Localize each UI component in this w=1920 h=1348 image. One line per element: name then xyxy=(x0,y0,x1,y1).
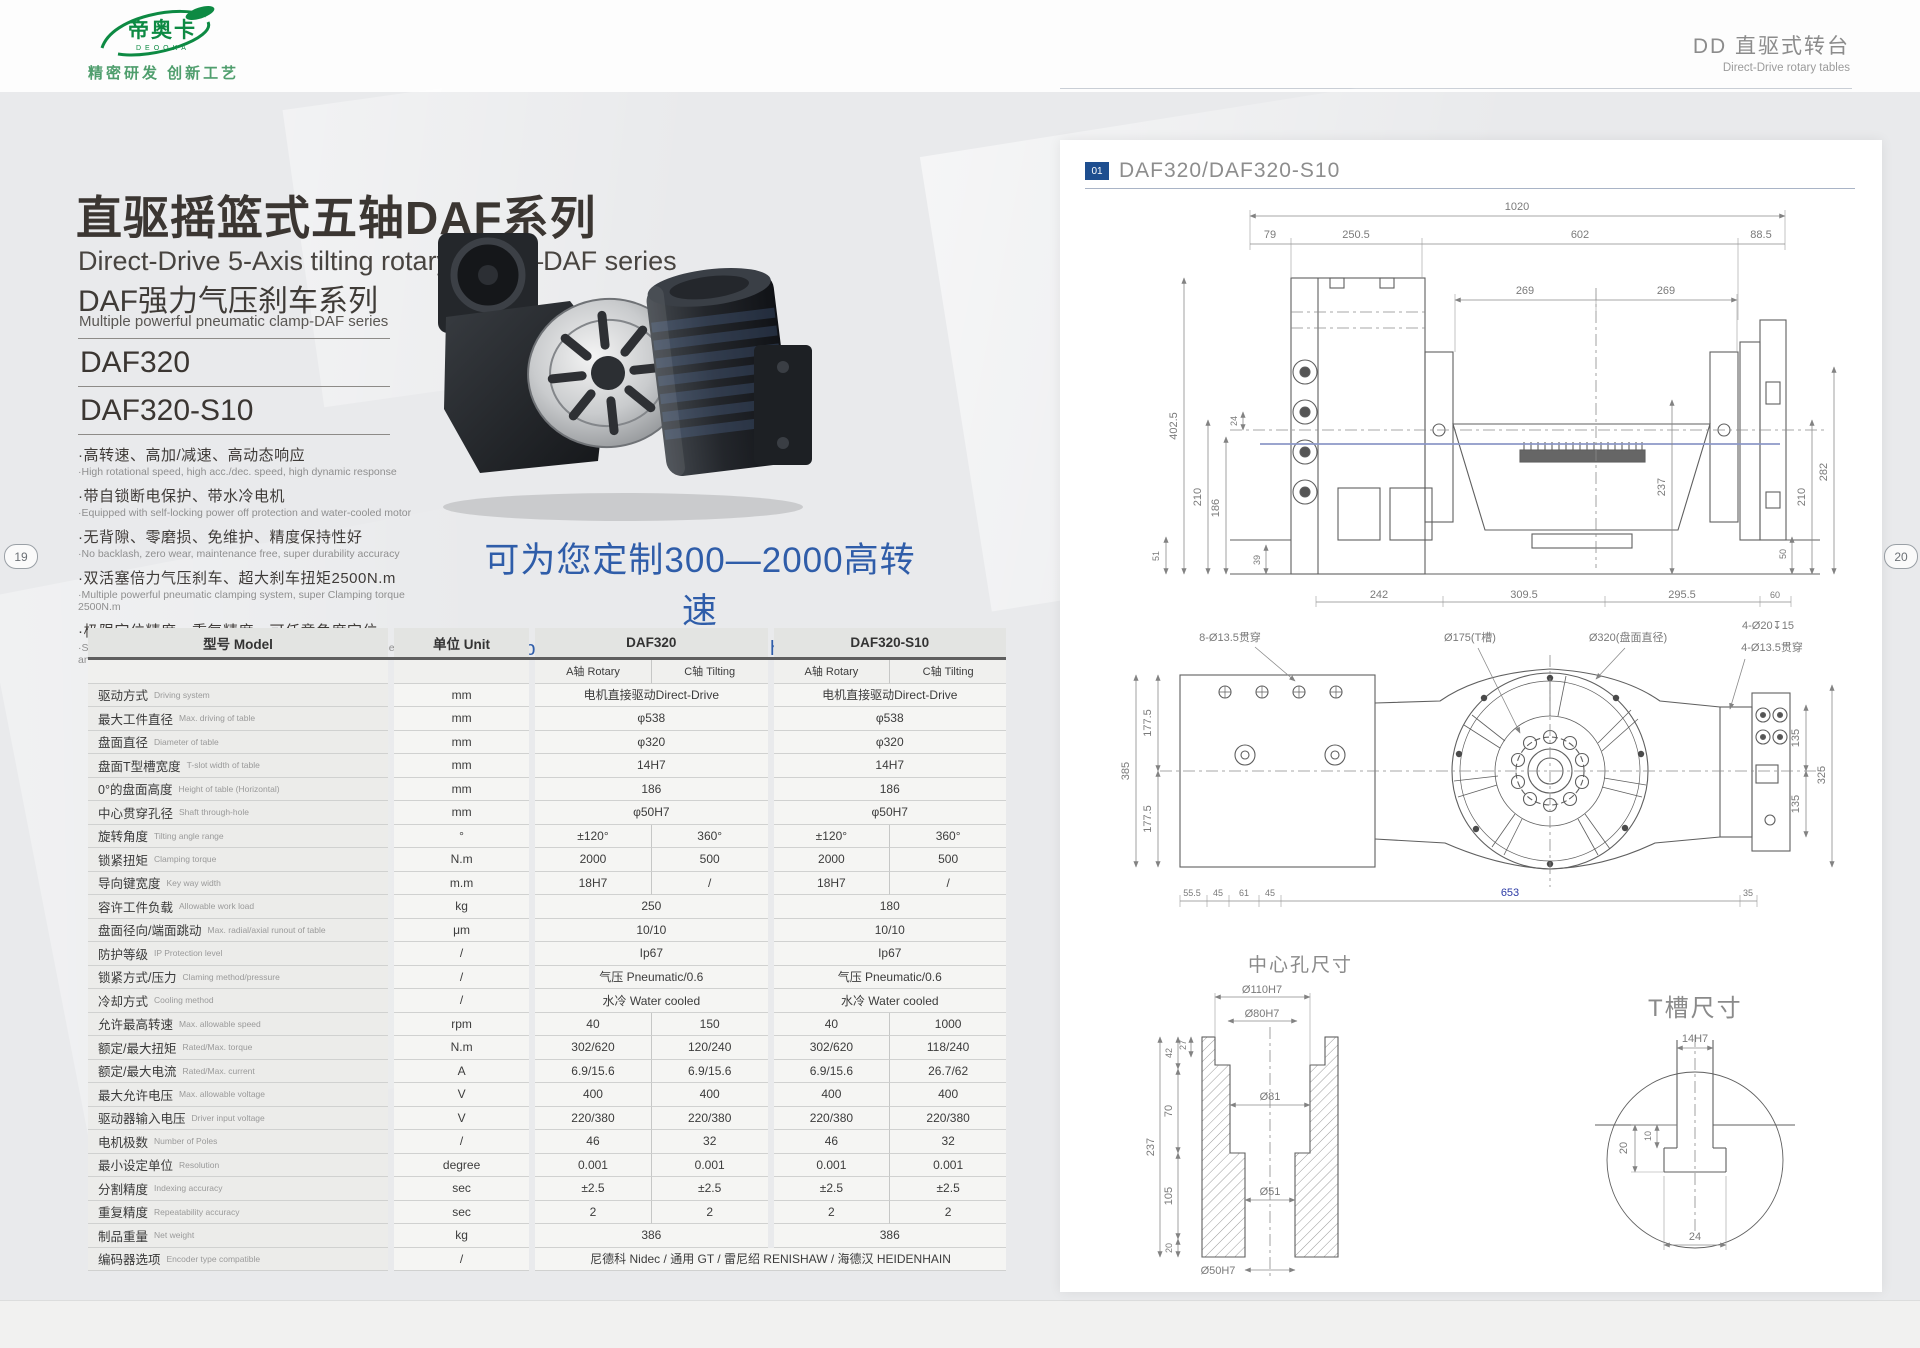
row-unit: / xyxy=(394,942,529,966)
row-value: φ538 xyxy=(774,707,1006,731)
spec-row: 防护等级IP Protection level/Ip67Ip67 xyxy=(88,942,1006,966)
row-value: 1000 xyxy=(889,1013,1006,1037)
row-value: 电机直接驱动Direct-Drive xyxy=(774,684,1006,708)
row-label: 分割精度Indexing accuracy xyxy=(88,1177,388,1201)
row-value: 40 xyxy=(774,1013,890,1037)
row-value: 2 xyxy=(535,1201,651,1225)
dim-label: 24 xyxy=(1689,1231,1701,1243)
row-value: 18H7 xyxy=(774,872,890,896)
axis-c-label: C轴 Tilting xyxy=(889,660,1006,684)
row-value: 220/380 xyxy=(889,1107,1006,1131)
spec-row: 最大工件直径Max. driving of tablemmφ538φ538 xyxy=(88,707,1006,731)
callout-label: Ø175(T槽) xyxy=(1444,631,1496,644)
dim-label: 269 xyxy=(1657,285,1675,297)
dim-label: 14H7 xyxy=(1682,1033,1708,1045)
header-divider xyxy=(1060,88,1852,89)
row-value: 6.9/15.6 xyxy=(774,1060,890,1084)
row-unit: ° xyxy=(394,825,529,849)
spec-row: 驱动方式Driving systemmm电机直接驱动Direct-Drive电机… xyxy=(88,684,1006,708)
spec-table-rows: 驱动方式Driving systemmm电机直接驱动Direct-Drive电机… xyxy=(88,684,1006,1272)
row-unit: / xyxy=(394,989,529,1013)
tslot-drawing: 14H7 20 10 24 xyxy=(1545,1020,1835,1280)
row-value: 302/620 xyxy=(774,1036,890,1060)
row-label: 导向键宽度Key way width xyxy=(88,872,388,896)
row-value: 18H7 xyxy=(535,872,651,896)
row-value: 10/10 xyxy=(774,919,1006,943)
callout-label: 4-Ø13.5贯穿 xyxy=(1741,640,1803,654)
dim-label: 242 xyxy=(1370,589,1388,601)
spec-row: 最大允许电压Max. allowable voltageV40040040040… xyxy=(88,1083,1006,1107)
dim-label: 88.5 xyxy=(1750,229,1771,241)
row-value: 386 xyxy=(535,1224,767,1248)
spec-row: 锁紧扭矩Clamping torqueN.m20005002000500 xyxy=(88,848,1006,872)
feature-cn: ·无背隙、零磨损、免维护、精度保持性好 xyxy=(78,526,438,547)
dim-label: 50 xyxy=(1778,549,1788,559)
section-divider xyxy=(1085,188,1855,189)
dim-label: 186 xyxy=(1210,499,1222,517)
drawing-section-label: 01 DAF320/DAF320-S10 xyxy=(1085,159,1340,183)
dim-label: 210 xyxy=(1796,488,1808,506)
tslot-heading: T槽尺寸 xyxy=(1648,988,1743,1023)
dim-label: 45 xyxy=(1213,888,1223,898)
row-label: 最大允许电压Max. allowable voltage xyxy=(88,1083,388,1107)
row-label: 盘面径向/端面跳动Max. radial/axial runout of tab… xyxy=(88,919,388,943)
row-value: / xyxy=(651,872,768,896)
row-value: 500 xyxy=(889,848,1006,872)
divider xyxy=(78,434,390,435)
row-unit: kg xyxy=(394,1224,529,1248)
dim-label: 653 xyxy=(1501,887,1519,899)
row-label: 额定/最大电流Rated/Max. current xyxy=(88,1060,388,1084)
row-unit: rpm xyxy=(394,1013,529,1037)
row-label: 锁紧方式/压力Claming method/pressure xyxy=(88,966,388,990)
spec-row: 额定/最大扭矩Rated/Max. torqueN.m302/620120/24… xyxy=(88,1036,1006,1060)
row-unit: mm xyxy=(394,801,529,825)
spec-axis-spacer xyxy=(88,660,388,684)
dim-label: Ø110H7 xyxy=(1242,985,1282,996)
row-value: 120/240 xyxy=(651,1036,768,1060)
dim-label: 325 xyxy=(1816,766,1828,784)
row-value: 电机直接驱动Direct-Drive xyxy=(535,684,767,708)
dim-label: 61 xyxy=(1239,888,1249,898)
dim-label: 385 xyxy=(1120,762,1132,780)
dim-label: 27 xyxy=(1178,1040,1188,1050)
row-value: 2 xyxy=(774,1201,890,1225)
callout-label: Ø320(盘面直径) xyxy=(1589,630,1667,644)
row-value: ±2.5 xyxy=(651,1177,768,1201)
row-unit: V xyxy=(394,1083,529,1107)
dim-label: Ø50H7 xyxy=(1201,1265,1236,1277)
dim-label: 402.5 xyxy=(1168,412,1180,440)
catalog-page: 帝奥卡 DEOOKA 精密研发 创新工艺 DD 直驱式转台 Direct-Dri… xyxy=(0,0,1920,1348)
spec-axis-spacer xyxy=(394,660,529,684)
row-label: 驱动器输入电压Driver input voltage xyxy=(88,1107,388,1131)
row-value: 386 xyxy=(774,1224,1006,1248)
row-value: 46 xyxy=(535,1130,651,1154)
header-right: DD 直驱式转台 Direct-Drive rotary tables xyxy=(1693,30,1850,74)
dim-label: 177.5 xyxy=(1142,709,1154,737)
feature-en: ·No backlash, zero wear, maintenance fre… xyxy=(78,548,438,560)
row-unit: V xyxy=(394,1107,529,1131)
row-value: ±2.5 xyxy=(535,1177,651,1201)
row-value: 186 xyxy=(774,778,1006,802)
spec-row: 编码器选项Encoder type compatible/尼德科 Nidec /… xyxy=(88,1248,1006,1272)
callout-label: 4-Ø20↧15 xyxy=(1742,620,1794,632)
row-value: 32 xyxy=(889,1130,1006,1154)
row-unit: / xyxy=(394,1248,529,1272)
row-label: 制品重量Net weight xyxy=(88,1224,388,1248)
dim-label: 1020 xyxy=(1505,201,1529,213)
dim-label: 135 xyxy=(1790,729,1802,747)
center-hole-drawing: Ø110H7 Ø80H7 237 42 27 70 105 20 Ø81 Ø51… xyxy=(1140,985,1420,1285)
feature-cn: ·高转速、高加/减速、高动态响应 xyxy=(78,444,438,465)
spec-row: 额定/最大电流Rated/Max. currentA6.9/15.66.9/15… xyxy=(88,1060,1006,1084)
dim-label: 282 xyxy=(1818,463,1830,481)
dim-label: 70 xyxy=(1163,1105,1175,1117)
row-value: 400 xyxy=(651,1083,768,1107)
feature-en: ·High rotational speed, high acc./dec. s… xyxy=(78,466,438,478)
row-unit: A xyxy=(394,1060,529,1084)
dim-label: 237 xyxy=(1145,1138,1157,1156)
model-daf320-s10: DAF320-S10 xyxy=(80,394,253,428)
dim-label: 250.5 xyxy=(1342,229,1370,241)
dim-label: Ø51 xyxy=(1260,1186,1281,1198)
row-value: Ip67 xyxy=(535,942,767,966)
dim-label: 309.5 xyxy=(1510,589,1538,601)
row-unit: mm xyxy=(394,731,529,755)
dim-label: Ø81 xyxy=(1260,1091,1281,1103)
row-value: φ50H7 xyxy=(774,801,1006,825)
row-label: 编码器选项Encoder type compatible xyxy=(88,1248,388,1272)
header-right-title: DD 直驱式转台 xyxy=(1693,30,1850,60)
row-value: 6.9/15.6 xyxy=(651,1060,768,1084)
feature-en: ·Equipped with self-locking power off pr… xyxy=(78,507,438,519)
footer-band xyxy=(0,1300,1920,1348)
spec-header-daf320: DAF320 xyxy=(535,628,767,657)
row-value: φ320 xyxy=(535,731,767,755)
row-value: 220/380 xyxy=(535,1107,651,1131)
row-value: 气压 Pneumatic/0.6 xyxy=(774,966,1006,990)
dim-label: 602 xyxy=(1571,229,1589,241)
row-value: 2000 xyxy=(535,848,651,872)
row-unit: mm xyxy=(394,754,529,778)
axis-a-label: A轴 Rotary xyxy=(535,660,651,684)
spec-row: 旋转角度Tilting angle range°±120°360°±120°36… xyxy=(88,825,1006,849)
row-value: 46 xyxy=(774,1130,890,1154)
dim-label: 79 xyxy=(1264,229,1276,241)
page-number-left: 19 xyxy=(4,544,38,569)
row-unit: kg xyxy=(394,895,529,919)
spec-row: 重复精度Repeatability accuracysec2222 xyxy=(88,1201,1006,1225)
row-value: 水冷 Water cooled xyxy=(535,989,767,1013)
spec-header-model: 型号 Model xyxy=(88,628,388,657)
spec-row: 盘面T型槽宽度T-slot width of tablemm14H714H7 xyxy=(88,754,1006,778)
row-label: 电机极数Number of Poles xyxy=(88,1130,388,1154)
row-value: φ50H7 xyxy=(535,801,767,825)
row-label: 中心贯穿孔径Shaft through-hole xyxy=(88,801,388,825)
row-unit: sec xyxy=(394,1177,529,1201)
dim-label: 135 xyxy=(1790,795,1802,813)
spec-row: 制品重量Net weightkg386386 xyxy=(88,1224,1006,1248)
dim-label: 20 xyxy=(1164,1243,1174,1253)
row-value: 400 xyxy=(889,1083,1006,1107)
spec-row: 电机极数Number of Poles/46324632 xyxy=(88,1130,1006,1154)
row-label: 最大工件直径Max. driving of table xyxy=(88,707,388,731)
spec-header-daf320-s10: DAF320-S10 xyxy=(774,628,1006,657)
row-value: 400 xyxy=(774,1083,890,1107)
series-subtitle: Multiple powerful pneumatic clamp-DAF se… xyxy=(79,313,388,330)
row-value: 0.001 xyxy=(889,1154,1006,1178)
page-number-right: 20 xyxy=(1884,544,1918,569)
section-title: DAF320/DAF320-S10 xyxy=(1119,159,1340,183)
spec-row: 最小设定单位Resolutiondegree0.0010.0010.0010.0… xyxy=(88,1154,1006,1178)
spec-row: 允许最高转速Max. allowable speedrpm40150401000 xyxy=(88,1013,1006,1037)
dim-label: 39 xyxy=(1252,555,1262,565)
model-daf320: DAF320 xyxy=(80,346,190,380)
axis-a-label: A轴 Rotary xyxy=(774,660,890,684)
logo-subtext: DEOOKA xyxy=(136,45,190,52)
spec-row: 盘面径向/端面跳动Max. radial/axial runout of tab… xyxy=(88,919,1006,943)
row-label: 重复精度Repeatability accuracy xyxy=(88,1201,388,1225)
row-value: 水冷 Water cooled xyxy=(774,989,1006,1013)
dim-label: 51 xyxy=(1151,551,1161,561)
feature-cn: ·双活塞倍力气压刹车、超大刹车扭矩2500N.m xyxy=(78,567,438,588)
spec-row: 盘面直径Diameter of tablemmφ320φ320 xyxy=(88,731,1006,755)
row-value: 0.001 xyxy=(651,1154,768,1178)
row-value: φ538 xyxy=(535,707,767,731)
custom-speed-cn: 可为您定制300—2000高转速 xyxy=(478,532,922,634)
dim-label: 42 xyxy=(1164,1048,1174,1058)
dim-label: 105 xyxy=(1163,1187,1175,1205)
feature-item: ·无背隙、零磨损、免维护、精度保持性好·No backlash, zero we… xyxy=(78,526,438,560)
dim-label: 295.5 xyxy=(1668,589,1696,601)
header xyxy=(0,0,1920,92)
spec-header-unit: 单位 Unit xyxy=(394,628,529,657)
row-value: 0.001 xyxy=(535,1154,651,1178)
row-unit: / xyxy=(394,1130,529,1154)
row-value: 186 xyxy=(535,778,767,802)
dim-label: 237 xyxy=(1656,478,1668,496)
row-value: 10/10 xyxy=(535,919,767,943)
feature-en: ·Multiple powerful pneumatic clamping sy… xyxy=(78,589,438,613)
row-label: 防护等级IP Protection level xyxy=(88,942,388,966)
row-unit: / xyxy=(394,966,529,990)
row-value: ±120° xyxy=(535,825,651,849)
row-value: 180 xyxy=(774,895,1006,919)
front-view-drawing: 1020 79 250.5 602 88.5 269 269 402.5 210… xyxy=(1080,192,1870,607)
dim-label: 269 xyxy=(1516,285,1534,297)
row-value: 26.7/62 xyxy=(889,1060,1006,1084)
row-unit: N.m xyxy=(394,1036,529,1060)
row-value: 250 xyxy=(535,895,767,919)
feature-item: ·双活塞倍力气压刹车、超大刹车扭矩2500N.m·Multiple powerf… xyxy=(78,567,438,613)
row-label: 盘面直径Diameter of table xyxy=(88,731,388,755)
feature-item: ·带自锁断电保护、带水冷电机·Equipped with self-lockin… xyxy=(78,485,438,519)
dim-label: 10 xyxy=(1643,1131,1653,1141)
divider xyxy=(78,386,390,387)
row-label: 允许最高转速Max. allowable speed xyxy=(88,1013,388,1037)
row-value: 220/380 xyxy=(651,1107,768,1131)
brand-logo-icon: 帝奥卡 DEOOKA xyxy=(84,4,254,62)
row-unit: N.m xyxy=(394,848,529,872)
row-unit: mm xyxy=(394,684,529,708)
row-value: Ip67 xyxy=(774,942,1006,966)
row-value: ±120° xyxy=(774,825,890,849)
spec-axis-row: A轴 Rotary C轴 Tilting A轴 Rotary C轴 Tiltin… xyxy=(88,660,1006,684)
dim-label: 45 xyxy=(1265,888,1275,898)
row-value: 14H7 xyxy=(535,754,767,778)
dim-label: 24 xyxy=(1229,416,1239,426)
row-value: 32 xyxy=(651,1130,768,1154)
plan-view-drawing: 8-Ø13.5贯穿 Ø175(T槽) Ø320(盘面直径) 4-Ø20↧15 4… xyxy=(1080,615,1870,915)
row-unit: sec xyxy=(394,1201,529,1225)
row-label: 0°的盘面高度Height of table (Horizontal) xyxy=(88,778,388,802)
row-value: 尼德科 Nidec / 通用 GT / 雷尼绍 RENISHAW / 海德汉 H… xyxy=(535,1248,1006,1272)
row-label: 容许工件负载Allowable work load xyxy=(88,895,388,919)
spec-row: 容许工件负载Allowable work loadkg250180 xyxy=(88,895,1006,919)
dim-label: 35 xyxy=(1743,888,1753,898)
spec-table: 型号 Model 单位 Unit DAF320 DAF320-S10 A轴 Ro… xyxy=(88,628,1006,1271)
row-label: 最小设定单位Resolution xyxy=(88,1154,388,1178)
row-label: 驱动方式Driving system xyxy=(88,684,388,708)
row-label: 额定/最大扭矩Rated/Max. torque xyxy=(88,1036,388,1060)
row-unit: m.m xyxy=(394,872,529,896)
dim-label: 60 xyxy=(1770,590,1780,600)
feature-item: ·高转速、高加/减速、高动态响应·High rotational speed, … xyxy=(78,444,438,478)
row-value: 2 xyxy=(889,1201,1006,1225)
section-index-badge: 01 xyxy=(1085,162,1109,180)
callout-label: 8-Ø13.5贯穿 xyxy=(1199,630,1261,644)
row-unit: μm xyxy=(394,919,529,943)
dim-label: 210 xyxy=(1192,488,1204,506)
spec-row: 中心贯穿孔径Shaft through-holemmφ50H7φ50H7 xyxy=(88,801,1006,825)
logo-text: 帝奥卡 xyxy=(128,18,197,42)
row-value: 500 xyxy=(651,848,768,872)
spec-row: 导向键宽度Key way widthm.m18H7/18H7/ xyxy=(88,872,1006,896)
row-value: φ320 xyxy=(774,731,1006,755)
row-value: / xyxy=(889,872,1006,896)
brand-tagline: 精密研发 创新工艺 xyxy=(88,62,239,83)
row-value: 14H7 xyxy=(774,754,1006,778)
row-value: 360° xyxy=(651,825,768,849)
row-value: ±2.5 xyxy=(774,1177,890,1201)
spec-row: 分割精度Indexing accuracysec±2.5±2.5±2.5±2.5 xyxy=(88,1177,1006,1201)
dim-label: Ø80H7 xyxy=(1245,1008,1280,1020)
spec-header-row: 型号 Model 单位 Unit DAF320 DAF320-S10 xyxy=(88,628,1006,657)
row-label: 旋转角度Tilting angle range xyxy=(88,825,388,849)
spec-row: 0°的盘面高度Height of table (Horizontal)mm186… xyxy=(88,778,1006,802)
row-value: 气压 Pneumatic/0.6 xyxy=(535,966,767,990)
header-right-subtitle: Direct-Drive rotary tables xyxy=(1693,62,1850,74)
row-value: 2000 xyxy=(774,848,890,872)
dim-label: 177.5 xyxy=(1142,805,1154,833)
row-value: 6.9/15.6 xyxy=(535,1060,651,1084)
row-value: 302/620 xyxy=(535,1036,651,1060)
divider xyxy=(78,338,390,339)
row-unit: degree xyxy=(394,1154,529,1178)
row-label: 盘面T型槽宽度T-slot width of table xyxy=(88,754,388,778)
row-value: 360° xyxy=(889,825,1006,849)
row-value: 150 xyxy=(651,1013,768,1037)
axis-c-label: C轴 Tilting xyxy=(651,660,768,684)
row-value: 2 xyxy=(651,1201,768,1225)
row-value: 118/240 xyxy=(889,1036,1006,1060)
row-value: 400 xyxy=(535,1083,651,1107)
dim-label: 55.5 xyxy=(1183,888,1201,898)
center-hole-heading: 中心孔尺寸 xyxy=(1248,950,1353,977)
row-value: 220/380 xyxy=(774,1107,890,1131)
row-value: 0.001 xyxy=(774,1154,890,1178)
row-unit: mm xyxy=(394,707,529,731)
row-label: 冷却方式Cooling method xyxy=(88,989,388,1013)
dim-label: 20 xyxy=(1618,1142,1630,1154)
spec-row: 驱动器输入电压Driver input voltageV220/380220/3… xyxy=(88,1107,1006,1131)
row-value: 40 xyxy=(535,1013,651,1037)
spec-row: 冷却方式Cooling method/水冷 Water cooled水冷 Wat… xyxy=(88,989,1006,1013)
row-value: ±2.5 xyxy=(889,1177,1006,1201)
feature-cn: ·带自锁断电保护、带水冷电机 xyxy=(78,485,438,506)
product-image xyxy=(418,205,818,535)
row-label: 锁紧扭矩Clamping torque xyxy=(88,848,388,872)
spec-row: 锁紧方式/压力Claming method/pressure/气压 Pneuma… xyxy=(88,966,1006,990)
row-unit: mm xyxy=(394,778,529,802)
